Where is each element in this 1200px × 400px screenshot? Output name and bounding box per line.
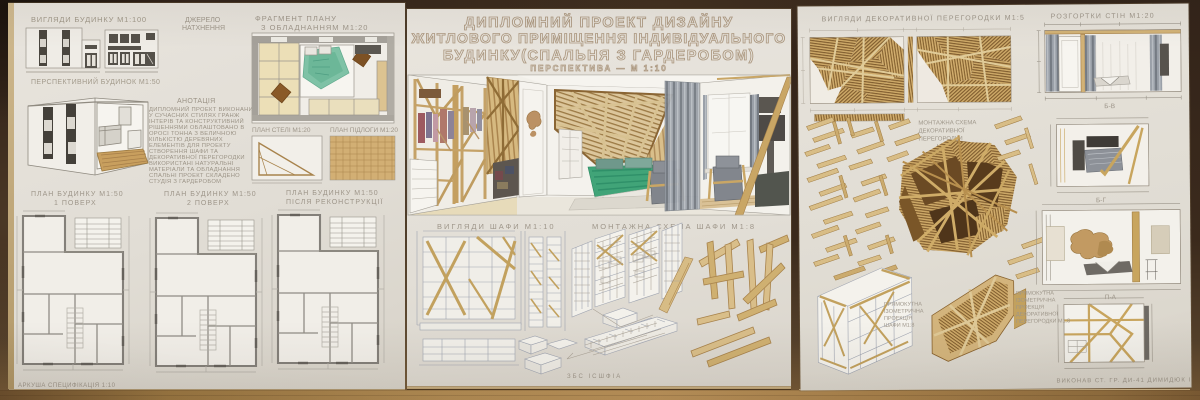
svg-text:2 ПОВЕРХ: 2 ПОВЕРХ: [187, 200, 230, 207]
svg-text:БУДИНКУ(СПАЛЬНЯ З ГАРДЕРОБОМ): БУДИНКУ(СПАЛЬНЯ З ГАРДЕРОБОМ): [443, 48, 755, 64]
svg-text:ПЕРСПЕКТИВНИЙ БУДИНОК М1:50: ПЕРСПЕКТИВНИЙ БУДИНОК М1:50: [31, 77, 160, 86]
svg-text:ВИГЛЯДИ ШАФИ М1:10: ВИГЛЯДИ ШАФИ М1:10: [437, 222, 556, 231]
svg-text:ДЕКОРАТИВНОЇ: ДЕКОРАТИВНОЇ: [1016, 311, 1059, 318]
svg-text:ПЛАН БУДИНКУ М1:50: ПЛАН БУДИНКУ М1:50: [286, 190, 379, 197]
svg-text:ДЕКОРАТИВНОЇ ПЕРЕГОРОДКИ: ДЕКОРАТИВНОЇ ПЕРЕГОРОДКИ: [149, 154, 245, 161]
svg-text:НАТХНЕННЯ: НАТХНЕННЯ: [182, 25, 225, 32]
svg-text:З ОБЛАДНАННЯМ М1:20: З ОБЛАДНАННЯМ М1:20: [261, 23, 368, 32]
svg-text:ЖИТЛОВОГО ПРИМІЩЕННЯ ІНДИВІДУА: ЖИТЛОВОГО ПРИМІЩЕННЯ ІНДИВІДУАЛЬНОГО: [411, 30, 787, 46]
svg-text:Б-В: Б-В: [1104, 103, 1115, 110]
svg-text:ПІСЛЯ РЕКОНСТРУКЦІЇ: ПІСЛЯ РЕКОНСТРУКЦІЇ: [286, 198, 383, 206]
svg-text:ФРАГМЕНТ ПЛАНУ: ФРАГМЕНТ ПЛАНУ: [255, 14, 337, 23]
svg-text:П-А: П-А: [1105, 294, 1117, 301]
svg-text:ДЕКОРАТИВНОЇ: ДЕКОРАТИВНОЇ: [918, 127, 964, 134]
svg-text:ДЖЕРЕЛО: ДЖЕРЕЛО: [185, 17, 221, 24]
svg-text:ПРЯМОКУТНА: ПРЯМОКУТНА: [884, 302, 922, 308]
svg-text:Б-Г: Б-Г: [1096, 197, 1106, 204]
svg-text:ШАФИ М1:8: ШАФИ М1:8: [884, 323, 914, 329]
svg-text:ПЛАН СТЕЛІ М1:20: ПЛАН СТЕЛІ М1:20: [252, 127, 311, 134]
svg-text:ПЕРСПЕКТИВА — М 1:10: ПЕРСПЕКТИВА — М 1:10: [530, 64, 667, 73]
svg-text:ПЕРЕГОРОДКИ М1:8: ПЕРЕГОРОДКИ М1:8: [1016, 318, 1070, 324]
svg-text:ЗБС ІСШФІА: ЗБС ІСШФІА: [567, 374, 622, 380]
svg-text:ПРЯМОКУТНА: ПРЯМОКУТНА: [1016, 291, 1054, 297]
svg-text:ВИГЛЯДИ ДЕКОРАТИВНОЇ ПЕРЕГОР: ВИГЛЯДИ ДЕКОРАТИВНОЇ ПЕРЕГОРОДКИ М1:5: [822, 14, 1026, 24]
svg-text:ДИПЛОМНИЙ ПРОЕКТ ДИЗАЙНУ: ДИПЛОМНИЙ ПРОЕКТ ДИЗАЙНУ: [464, 13, 733, 31]
svg-text:ВИКОНАВ СТ. ГР. ДИ-41 ДИМИДЮК: ВИКОНАВ СТ. ГР. ДИ-41 ДИМИДЮК І.В.: [1056, 377, 1191, 384]
svg-text:ІНТЕРІВ ТА КОНСТРУКТИВНИЙ: ІНТЕРІВ ТА КОНСТРУКТИВНИЙ: [149, 117, 244, 125]
svg-text:ПЛАН ПІДЛОГИ М1:20: ПЛАН ПІДЛОГИ М1:20: [330, 127, 398, 134]
svg-text:ІЗОМЕТРИЧНА: ІЗОМЕТРИЧНА: [1016, 298, 1056, 304]
svg-text:ПРОЕКЦІЯ: ПРОЕКЦІЯ: [884, 316, 912, 322]
svg-text:СТУДІЯ З ГАРДЕРОБОМ: СТУДІЯ З ГАРДЕРОБОМ: [149, 179, 221, 185]
svg-text:МОНТАЖНА СХЕМА: МОНТАЖНА СХЕМА: [918, 120, 976, 126]
svg-text:1 ПОВЕРХ: 1 ПОВЕРХ: [54, 200, 97, 207]
svg-text:АРКУША СПЕЦИФІКАЦІЯ 1:10: АРКУША СПЕЦИФІКАЦІЯ 1:10: [18, 383, 116, 389]
svg-text:ДИПЛОМНИЙ ПРОЕКТ ВИКОНАНИЙ: ДИПЛОМНИЙ ПРОЕКТ ВИКОНАНИЙ: [149, 105, 258, 113]
svg-text:ІЗОМЕТРИЧНА: ІЗОМЕТРИЧНА: [884, 309, 924, 315]
svg-text:ПРОЕКЦІЯ: ПРОЕКЦІЯ: [1016, 305, 1044, 311]
svg-text:ВИГЛЯДИ БУДИНКУ М1:100: ВИГЛЯДИ БУДИНКУ М1:100: [31, 15, 147, 24]
svg-text:РОЗГОРТКИ СТІН М1:20: РОЗГОРТКИ СТІН М1:20: [1051, 13, 1155, 21]
svg-text:АНОТАЦІЯ: АНОТАЦІЯ: [177, 98, 215, 105]
svg-text:ПЛАН БУДИНКУ М1:50: ПЛАН БУДИНКУ М1:50: [164, 191, 257, 198]
svg-text:ПЛАН БУДИНКУ М1:50: ПЛАН БУДИНКУ М1:50: [31, 191, 124, 198]
